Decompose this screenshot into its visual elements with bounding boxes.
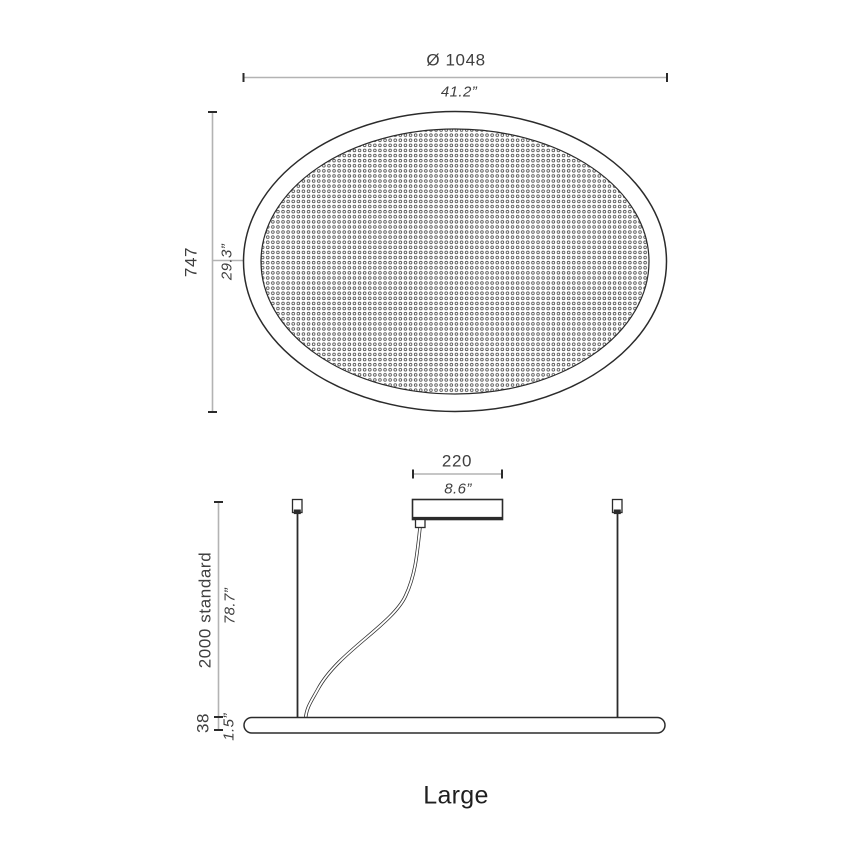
drop-height-imperial-label: 78.7” bbox=[223, 588, 238, 624]
ceiling-fitting-left-collar bbox=[294, 510, 301, 515]
canopy-width-metric-label: 220 bbox=[442, 453, 472, 470]
minor-axis-imperial-label: 29.3” bbox=[220, 244, 235, 280]
technical-drawing bbox=[0, 0, 860, 860]
power-cable-core bbox=[306, 528, 421, 720]
drop-height-metric-label: 2000 standard bbox=[197, 552, 214, 669]
thickness-metric-label: 38 bbox=[195, 713, 212, 733]
fixture-body bbox=[244, 718, 665, 734]
shade-perforated-panel bbox=[261, 129, 649, 394]
minor-axis-metric-label: 747 bbox=[183, 247, 200, 277]
diameter-metric-label: Ø 1048 bbox=[426, 52, 485, 69]
size-variant-label: Large bbox=[423, 782, 488, 811]
top-view-drawing bbox=[208, 73, 667, 412]
thickness-imperial-label: 1.5” bbox=[222, 713, 237, 740]
canopy-width-imperial-label: 8.6” bbox=[444, 482, 471, 497]
diameter-imperial-label: 41.2” bbox=[441, 85, 477, 100]
side-view-drawing bbox=[214, 470, 665, 734]
power-cable-outline bbox=[306, 528, 421, 720]
diagram-canvas: Ø 1048 41.2” 747 29.3” 220 8.6” 2000 sta… bbox=[0, 0, 860, 860]
canopy-box bbox=[413, 500, 503, 520]
ceiling-fitting-right-collar bbox=[614, 510, 621, 515]
cable-gland bbox=[416, 520, 426, 528]
